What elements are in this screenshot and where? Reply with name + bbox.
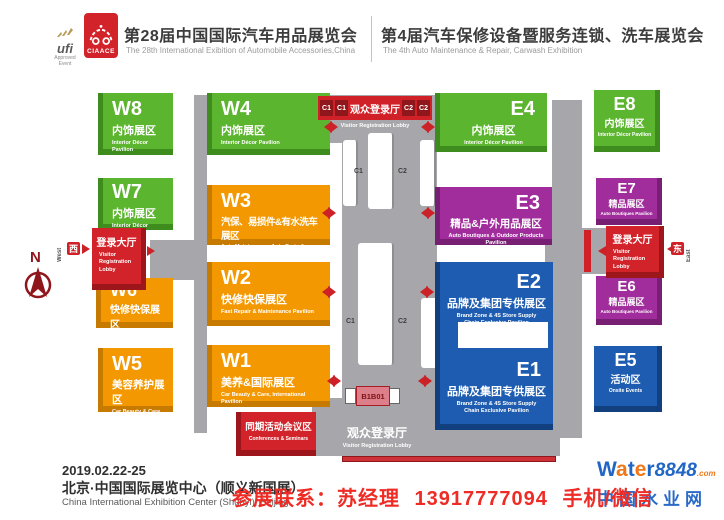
ciaace-logo-text: CIAACE	[87, 48, 115, 55]
corridor-label-c1: C1	[354, 168, 363, 175]
wm-number: 8848	[655, 460, 697, 481]
hall-name-en: Fast Repair & Maintenance Pavilion	[212, 309, 330, 316]
hall-code: E5	[594, 346, 657, 369]
hall-name-en: Interior Décor Pavilion	[594, 132, 655, 139]
hall-W8: W8 内饰展区 Interior Décor Pavilion	[98, 93, 173, 155]
expo2-subtitle: The 4th Auto Maintenance & Repair, Carwa…	[383, 46, 582, 55]
contact-info: 参展联系：苏经理 13917777094 手机/微信	[232, 482, 653, 511]
compass-icon	[20, 264, 56, 302]
hall-W7: W7 内饰展区 Interior Décor Pavilion	[98, 178, 173, 230]
hall-name-zh: 品牌及集团专供展区	[440, 295, 553, 311]
hall-W5: W5 美容养护展区 Car Beauty & Care Pavilion	[98, 348, 173, 412]
hall-code: W5	[103, 348, 173, 374]
two-way-arrow-icon	[321, 375, 347, 387]
gate-label-c1: C1	[320, 100, 333, 116]
event-dates: 2019.02.22-25	[62, 463, 146, 478]
west-direction-en: West	[57, 236, 63, 262]
booth-b1b01: B1B01	[356, 386, 390, 406]
corridor-label-c2: C2	[398, 318, 407, 325]
hall-name-zh: 精品展区	[596, 295, 657, 308]
hall-code: W8	[103, 93, 173, 119]
hall-code: E2	[440, 266, 553, 292]
hall-name-en: Car Beauty & Care Pavilion	[103, 409, 173, 423]
expo1-subtitle: The 28th International Exibition of Auto…	[126, 46, 355, 55]
wm-domain: .com	[697, 469, 716, 478]
hall-name-en: Auto Boutiques Pavilion	[596, 211, 657, 217]
hall-code: W7	[103, 178, 173, 202]
hall-name-zh: 品牌及集团专供展区	[440, 383, 553, 399]
hall-name-en: Fast Repair & Maintenance Pavilion	[101, 333, 173, 346]
hall-name-en: Car Beauty & Care, International Pavilio…	[212, 392, 330, 406]
water8848-watermark: Water8848.com	[597, 459, 716, 480]
conference-name-en: Conferences & Seminars	[241, 436, 316, 442]
hall-name-zh: 精品展区	[596, 197, 657, 210]
lobby-name-zh: 登录大厅	[96, 234, 137, 249]
hall-name-zh: 内饰展区	[212, 122, 330, 138]
hall-name-en: Interior Décor Pavilion	[212, 140, 330, 147]
car-icon	[86, 22, 116, 48]
hall-code: E1	[440, 354, 553, 380]
hall-name-zh: 内饰展区	[440, 122, 547, 138]
east-corridor-door	[584, 230, 591, 272]
header-divider	[371, 16, 372, 62]
bottom-entrance-bar	[342, 456, 556, 462]
entrance-arrow-icon	[147, 246, 160, 256]
hall-code: W3	[212, 185, 330, 211]
hall-name-en: Auto Maintenance, Auto Parts & Carwash P…	[212, 244, 325, 258]
ufi-fan-icon	[57, 28, 73, 37]
hall-code: W1	[212, 345, 330, 371]
wm-letter: a	[616, 458, 628, 481]
two-way-arrow-icon	[318, 121, 344, 133]
hall-name-zh: 快修快保展区	[101, 301, 173, 331]
hall-name-zh: 内饰展区	[103, 205, 173, 221]
hall-name-zh: 汽保、易损件&有水洗车展区	[212, 214, 330, 242]
hall-name-zh: 快修快保展区	[212, 291, 330, 307]
corridor-hall-strip	[420, 140, 436, 206]
lobby-name-en: Visitor Registration Lobby	[610, 249, 655, 271]
hall-name-zh: 内饰展区	[594, 115, 655, 130]
hall-E5: E5 活动区 Onsite Events	[594, 346, 662, 412]
hall-E6: E6 精品展区 Auto Boutiques Pavilion	[596, 276, 662, 325]
two-way-arrow-icon	[316, 286, 342, 298]
corridor-hall-strip	[368, 133, 394, 209]
west-registration-lobby: 登录大厅 Visitor Registration Lobby	[92, 228, 146, 290]
bottom-lobby-name-en: Visitor Registration Lobby	[316, 443, 438, 449]
east-direction-zh: 东	[671, 242, 684, 255]
ciaace-logo: CIAACE	[84, 13, 118, 58]
expo1-title: 第28届中国国际汽车用品展览会	[124, 22, 357, 46]
hall-E1: E1 品牌及集团专供展区 Brand Zone & 4S Store Suppl…	[440, 354, 553, 415]
wm-letter: t	[628, 458, 635, 481]
west-entrance-arrow-icon	[82, 244, 95, 254]
lobby-name-en: Visitor Registration Lobby	[96, 252, 137, 274]
hall-code: E6	[596, 276, 657, 294]
two-way-arrow-icon	[414, 286, 440, 298]
hall-code: W2	[212, 262, 330, 288]
lobby-name-zh: 登录大厅	[610, 231, 655, 246]
expo2-title: 第4届汽车保修设备暨服务连锁、洗车展览会	[381, 22, 704, 46]
ufi-logo: ufi Approved Event	[48, 24, 82, 67]
bottom-lobby-name-zh: 观众登录厅	[316, 424, 438, 441]
ufi-label: ufi	[48, 42, 82, 55]
hall-E3: E3 精品&户外用品展区 Auto Boutiques & Outdoor Pr…	[435, 187, 552, 245]
wm-letter: e	[635, 458, 647, 481]
hall-E8: E8 内饰展区 Interior Décor Pavilion	[594, 90, 660, 152]
hall-name-zh: 内饰展区	[103, 122, 173, 138]
top-lobby-name-zh: 观众登录厅	[350, 101, 400, 116]
two-way-arrow-icon	[316, 207, 342, 219]
wm-letter: W	[597, 458, 616, 481]
wm-letter: r	[646, 458, 654, 481]
hall-W2: W2 快修快保展区 Fast Repair & Maintenance Pavi…	[207, 262, 330, 326]
hall-code: E8	[594, 90, 655, 113]
entrance-arrow-icon	[593, 246, 606, 256]
booth-tab	[389, 388, 400, 404]
hall-E2: E2 品牌及集团专供展区 Brand Zone & 4S Store Suppl…	[440, 266, 553, 327]
hall-name-zh: 活动区	[594, 371, 657, 386]
hall-E7: E7 精品展区 Auto Boutiques Pavilion	[596, 178, 662, 225]
two-way-arrow-icon	[415, 207, 441, 219]
hall-E2-E1-block: E2 品牌及集团专供展区 Brand Zone & 4S Store Suppl…	[435, 262, 553, 430]
two-way-arrow-icon	[415, 121, 441, 133]
hall-name-zh: 精品&户外用品展区	[440, 216, 552, 231]
ufi-sublabel: Approved Event	[48, 55, 82, 67]
two-way-arrow-icon	[412, 375, 438, 387]
west-direction-zh: 西	[67, 242, 80, 255]
corridor-label-c1: C1	[346, 318, 355, 325]
hall-name-en: Brand Zone & 4S Store Supply Chain Exclu…	[440, 401, 553, 415]
hall-code: E4	[440, 93, 547, 119]
hall-W4: W4 内饰展区 Interior Décor Pavilion	[207, 93, 330, 155]
hall-code: E7	[596, 178, 657, 196]
hall-W3: W3 汽保、易损件&有水洗车展区 Auto Maintenance, Auto …	[207, 185, 330, 245]
corridor-label-c2: C2	[398, 168, 407, 175]
conference-name-zh: 同期活动会议区	[241, 419, 316, 433]
east-registration-lobby: 登录大厅 Visitor Registration Lobby	[606, 226, 664, 278]
corridor-hall-strip	[358, 243, 394, 365]
hall-name-en: Interior Décor Pavilion	[440, 140, 547, 147]
top-visitor-lobby: C1 C1 观众登录厅 C2 C2	[318, 96, 432, 120]
gate-label-c2: C2	[417, 100, 430, 116]
exhibition-floorplan-poster: ufi Approved Event CIAACE 第28届中国国际汽车用品展览…	[0, 0, 724, 520]
east-direction-en: East	[686, 236, 692, 262]
hall-name-en: Onsite Events	[594, 388, 657, 395]
hall-name-zh: 美养&国际展区	[212, 374, 330, 390]
hall-code: W4	[212, 93, 330, 119]
hall-W1: W1 美养&国际展区 Car Beauty & Care, Internatio…	[207, 345, 330, 407]
gate-label-c2: C2	[402, 100, 415, 116]
conference-area: 同期活动会议区 Conferences & Seminars	[236, 412, 316, 456]
hall-name-en: Auto Boutiques Pavilion	[596, 309, 657, 315]
hall-divider-band	[458, 322, 548, 348]
hall-E4: E4 内饰展区 Interior Décor Pavilion	[435, 93, 547, 152]
booth-tab	[345, 388, 356, 404]
gate-label-c1: C1	[335, 100, 348, 116]
hall-code: E3	[440, 187, 552, 213]
hall-name-zh: 美容养护展区	[103, 377, 173, 407]
hall-name-en: Interior Décor Pavilion	[103, 140, 173, 154]
bottom-visitor-lobby: 观众登录厅 Visitor Registration Lobby	[316, 424, 438, 449]
hall-name-en: Auto Boutiques & Outdoor Products Pavili…	[440, 233, 552, 247]
